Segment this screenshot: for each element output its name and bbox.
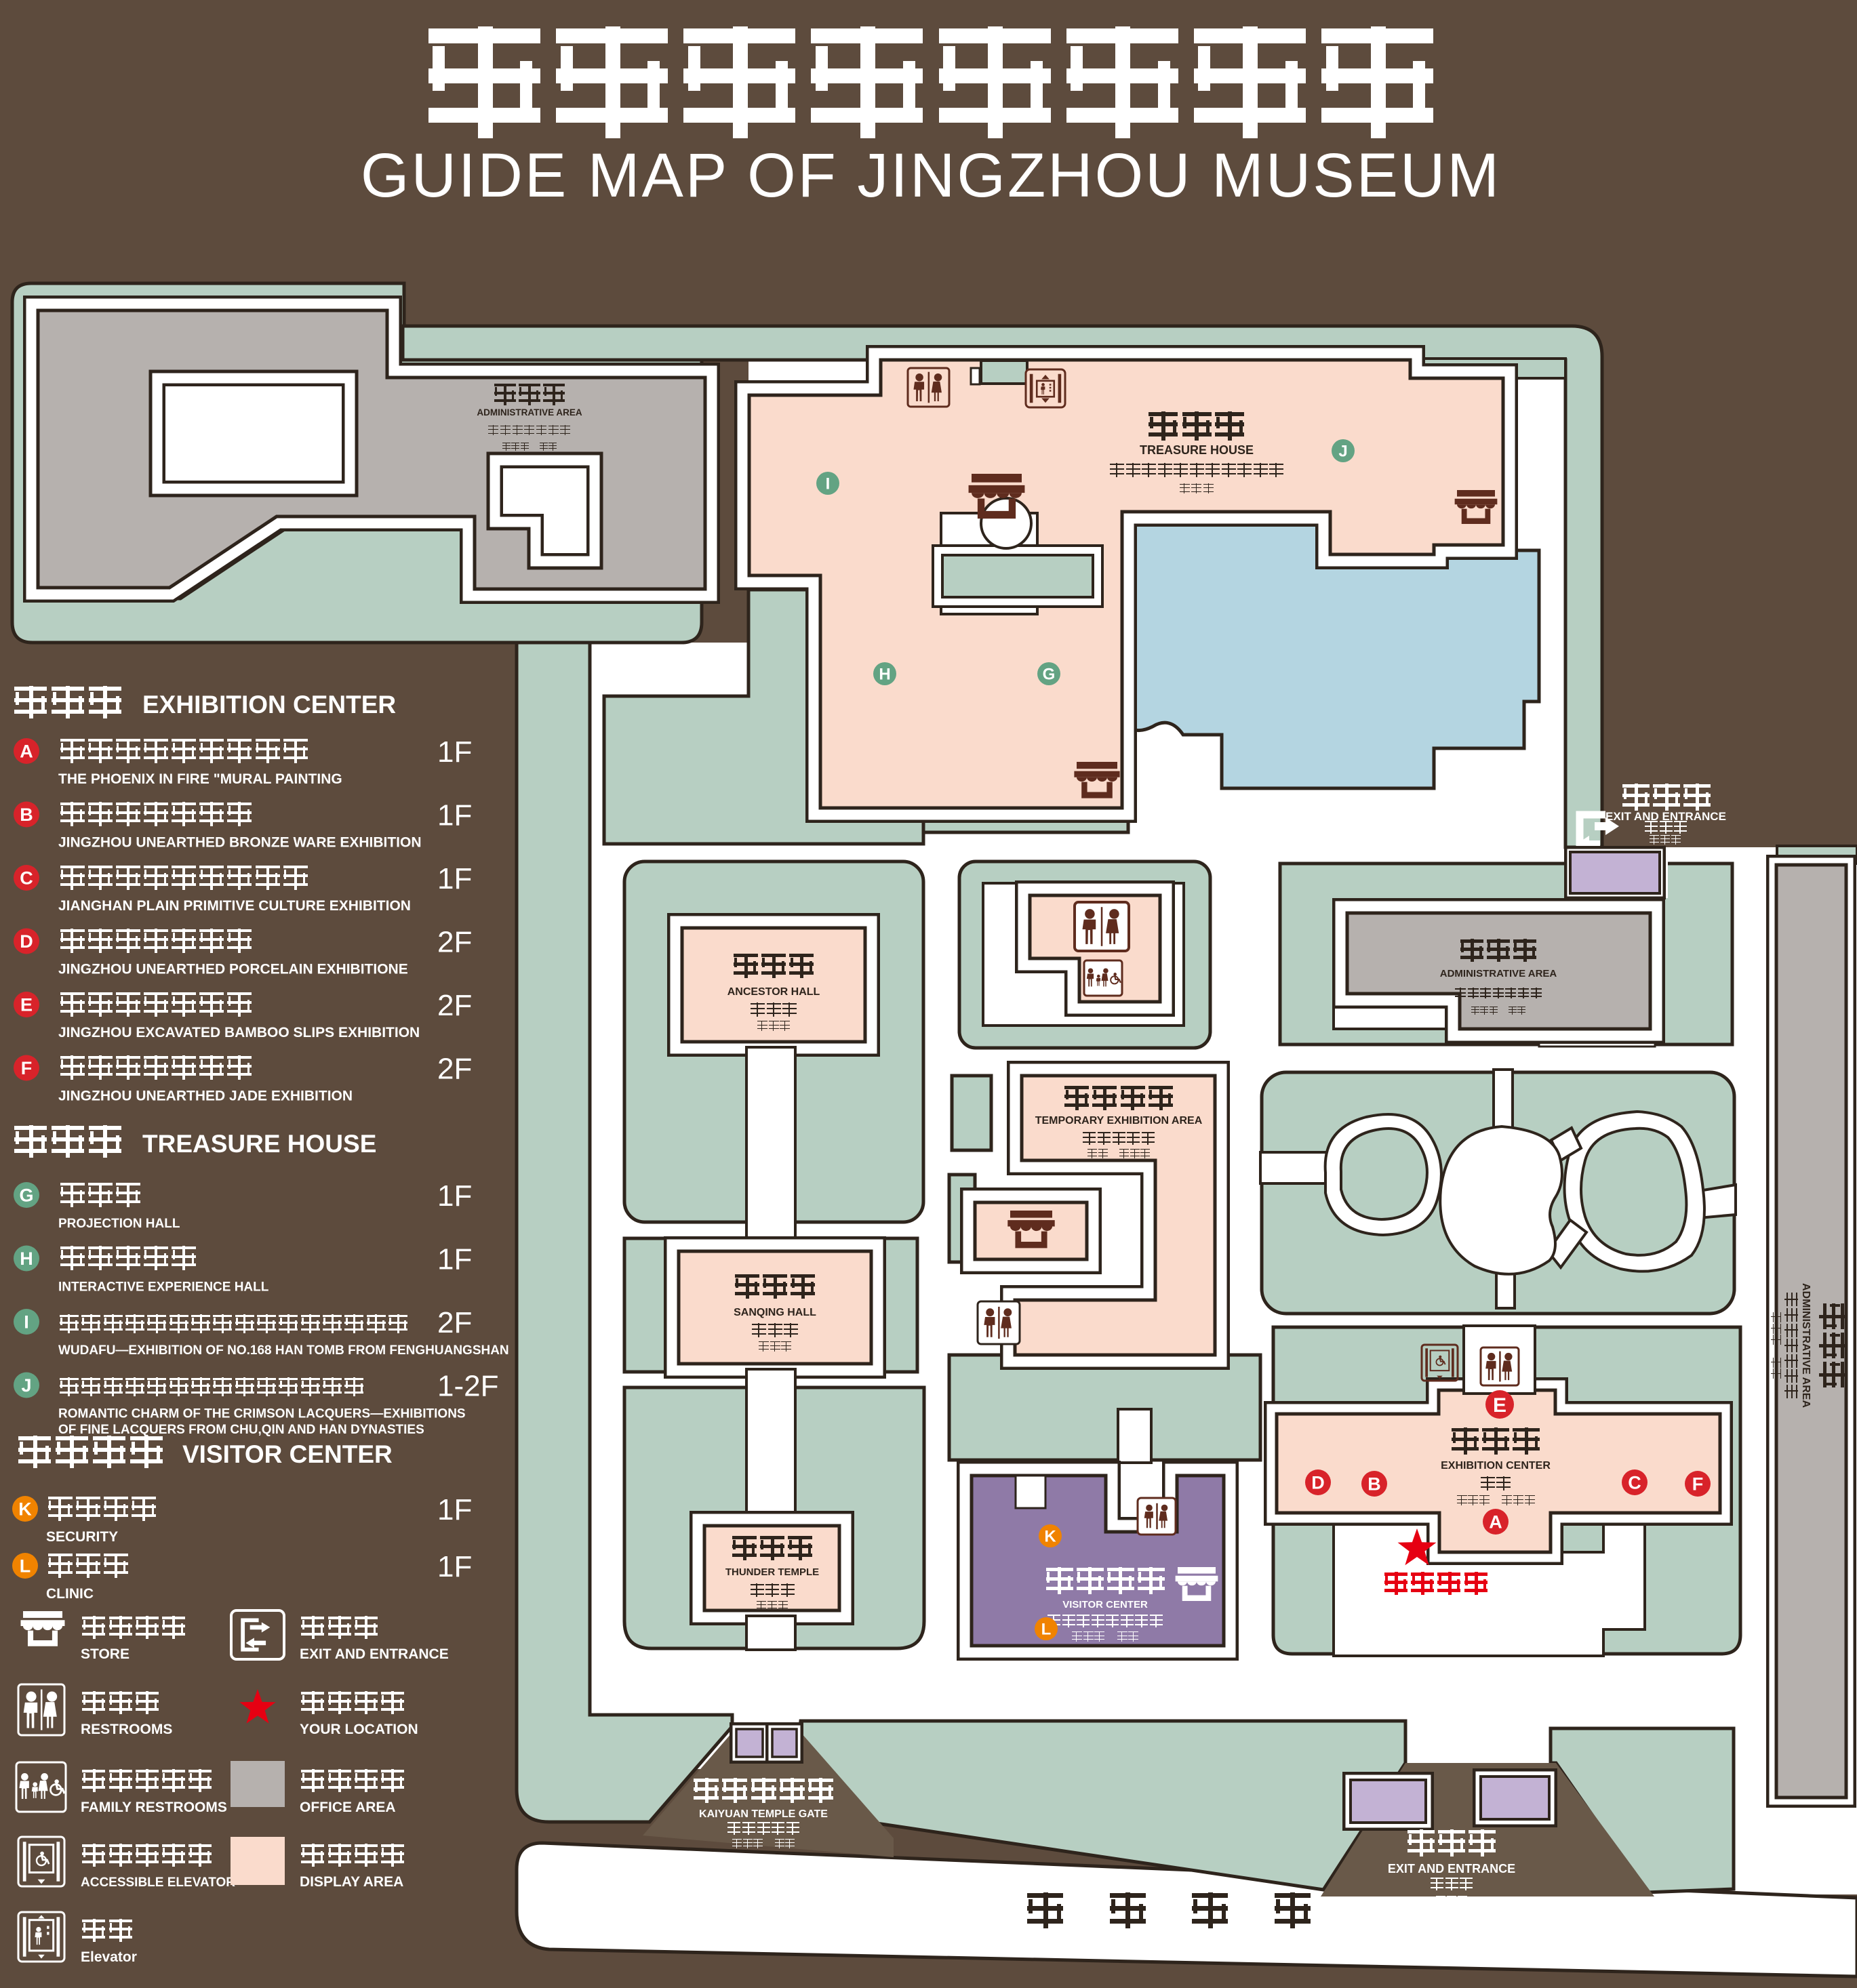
svg-text:DISPLAY AREA: DISPLAY AREA: [300, 1874, 403, 1890]
svg-text:A: A: [1489, 1512, 1502, 1533]
svg-text:FAMILY RESTROOMS: FAMILY RESTROOMS: [81, 1800, 227, 1815]
svg-text:I: I: [826, 475, 831, 493]
svg-text:J: J: [1338, 443, 1347, 461]
svg-text:ADMINISTRATIVE AREA: ADMINISTRATIVE AREA: [477, 407, 582, 418]
svg-text:STORE: STORE: [81, 1646, 129, 1662]
svg-text:RESTROOMS: RESTROOMS: [81, 1722, 172, 1737]
svg-text:VISITOR CENTER: VISITOR CENTER: [182, 1440, 393, 1468]
svg-text:K: K: [1044, 1528, 1056, 1546]
svg-text:L: L: [20, 1556, 31, 1577]
svg-text:JINGZHOU UNEARTHED PORCELAIN E: JINGZHOU UNEARTHED PORCELAIN EXHIBITIONE: [58, 962, 408, 977]
svg-text:F: F: [21, 1058, 33, 1078]
svg-text:A: A: [20, 742, 33, 762]
svg-text:WUDAFU—EXHIBITION OF NO.168 HA: WUDAFU—EXHIBITION OF NO.168 HAN TOMB FRO…: [58, 1343, 509, 1358]
svg-text:1F: 1F: [437, 735, 472, 769]
svg-text:J: J: [21, 1375, 31, 1396]
svg-text:EXIT AND ENTRANCE: EXIT AND ENTRANCE: [1388, 1862, 1515, 1875]
svg-text:I: I: [24, 1312, 29, 1333]
svg-text:1F: 1F: [437, 1243, 472, 1276]
svg-text:THUNDER TEMPLE: THUNDER TEMPLE: [725, 1566, 819, 1578]
svg-text:E: E: [1493, 1394, 1506, 1417]
svg-text:Elevator: Elevator: [81, 1949, 137, 1965]
svg-text:G: G: [19, 1185, 33, 1206]
svg-text:1F: 1F: [437, 862, 472, 895]
svg-text:YOUR LOCATION: YOUR LOCATION: [300, 1722, 418, 1737]
svg-text:TREASURE HOUSE: TREASURE HOUSE: [1140, 443, 1254, 457]
svg-text:E: E: [20, 995, 33, 1015]
svg-text:OFFICE AREA: OFFICE AREA: [300, 1800, 396, 1815]
svg-text:ACCESSIBLE ELEVATOR: ACCESSIBLE ELEVATOR: [81, 1875, 235, 1890]
svg-text:H: H: [879, 666, 890, 684]
svg-text:H: H: [20, 1249, 33, 1269]
svg-text:JINGZHOU UNEARTHED BRONZE WARE: JINGZHOU UNEARTHED BRONZE WARE EXHIBITIO…: [58, 835, 422, 851]
svg-text:G: G: [1043, 666, 1056, 684]
svg-text:INTERACTIVE EXPERIENCE HALL: INTERACTIVE EXPERIENCE HALL: [58, 1280, 269, 1295]
svg-text:ANCESTOR HALL: ANCESTOR HALL: [727, 986, 820, 998]
svg-text:SECURITY: SECURITY: [46, 1529, 118, 1545]
svg-text:JINGZHOU UNEARTHED JADE EXHIBI: JINGZHOU UNEARTHED JADE EXHIBITION: [58, 1089, 353, 1104]
svg-text:1-2F: 1-2F: [437, 1370, 498, 1403]
svg-text:PROJECTION HALL: PROJECTION HALL: [58, 1217, 180, 1231]
svg-text:OF FINE LACQUERS FROM CHU,QIN: OF FINE LACQUERS FROM CHU,QIN AND HAN DY…: [58, 1423, 424, 1437]
svg-text:JINGZHOU EXCAVATED BAMBOO SLIP: JINGZHOU EXCAVATED BAMBOO SLIPS EXHIBITI…: [58, 1025, 420, 1040]
svg-text:2F: 2F: [437, 1306, 472, 1339]
svg-text:D: D: [20, 931, 33, 952]
svg-text:2F: 2F: [437, 926, 472, 959]
svg-text:K: K: [18, 1499, 32, 1520]
svg-text:D: D: [1311, 1473, 1325, 1493]
svg-text:F: F: [1692, 1474, 1704, 1495]
svg-text:1F: 1F: [437, 1179, 472, 1213]
svg-text:2F: 2F: [437, 1053, 472, 1086]
svg-text:EXIT AND ENTRANCE: EXIT AND ENTRANCE: [300, 1646, 449, 1662]
svg-text:ADMINISTRATIVE AREA: ADMINISTRATIVE AREA: [1800, 1283, 1812, 1408]
svg-text:TREASURE HOUSE: TREASURE HOUSE: [142, 1130, 376, 1158]
svg-text:EXHIBITION CENTER: EXHIBITION CENTER: [142, 691, 396, 718]
svg-text:CLINIC: CLINIC: [46, 1586, 94, 1602]
svg-text:2F: 2F: [437, 989, 472, 1022]
svg-text:GUIDE MAP OF JINGZHOU MUSEUM: GUIDE MAP OF JINGZHOU MUSEUM: [361, 141, 1501, 210]
svg-text:C: C: [20, 868, 33, 889]
svg-text:EXHIBITION CENTER: EXHIBITION CENTER: [1441, 1460, 1551, 1472]
svg-text:VISITOR CENTER: VISITOR CENTER: [1062, 1599, 1148, 1610]
svg-text:1F: 1F: [437, 1493, 472, 1526]
svg-text:TEMPORARY EXHIBITION AREA: TEMPORARY EXHIBITION AREA: [1035, 1115, 1203, 1127]
svg-text:SANQING HALL: SANQING HALL: [734, 1307, 816, 1318]
svg-text:C: C: [1628, 1473, 1641, 1493]
svg-text:B: B: [1367, 1474, 1381, 1495]
svg-text:1F: 1F: [437, 1550, 472, 1583]
svg-text:JIANGHAN PLAIN PRIMITIVE CULTU: JIANGHAN PLAIN PRIMITIVE CULTURE EXHIBIT…: [58, 898, 411, 914]
svg-text:ROMANTIC CHARM OF THE CRIMSON: ROMANTIC CHARM OF THE CRIMSON LACQUERS—E…: [58, 1407, 466, 1421]
svg-text:THE PHOENIX IN FIRE "MURAL PAI: THE PHOENIX IN FIRE "MURAL PAINTING: [58, 771, 342, 787]
svg-text:L: L: [1041, 1621, 1052, 1639]
svg-text:ADMINISTRATIVE AREA: ADMINISTRATIVE AREA: [1440, 968, 1557, 979]
svg-text:1F: 1F: [437, 799, 472, 832]
svg-text:B: B: [20, 805, 33, 825]
svg-text:KAIYUAN TEMPLE GATE: KAIYUAN TEMPLE GATE: [699, 1808, 828, 1820]
